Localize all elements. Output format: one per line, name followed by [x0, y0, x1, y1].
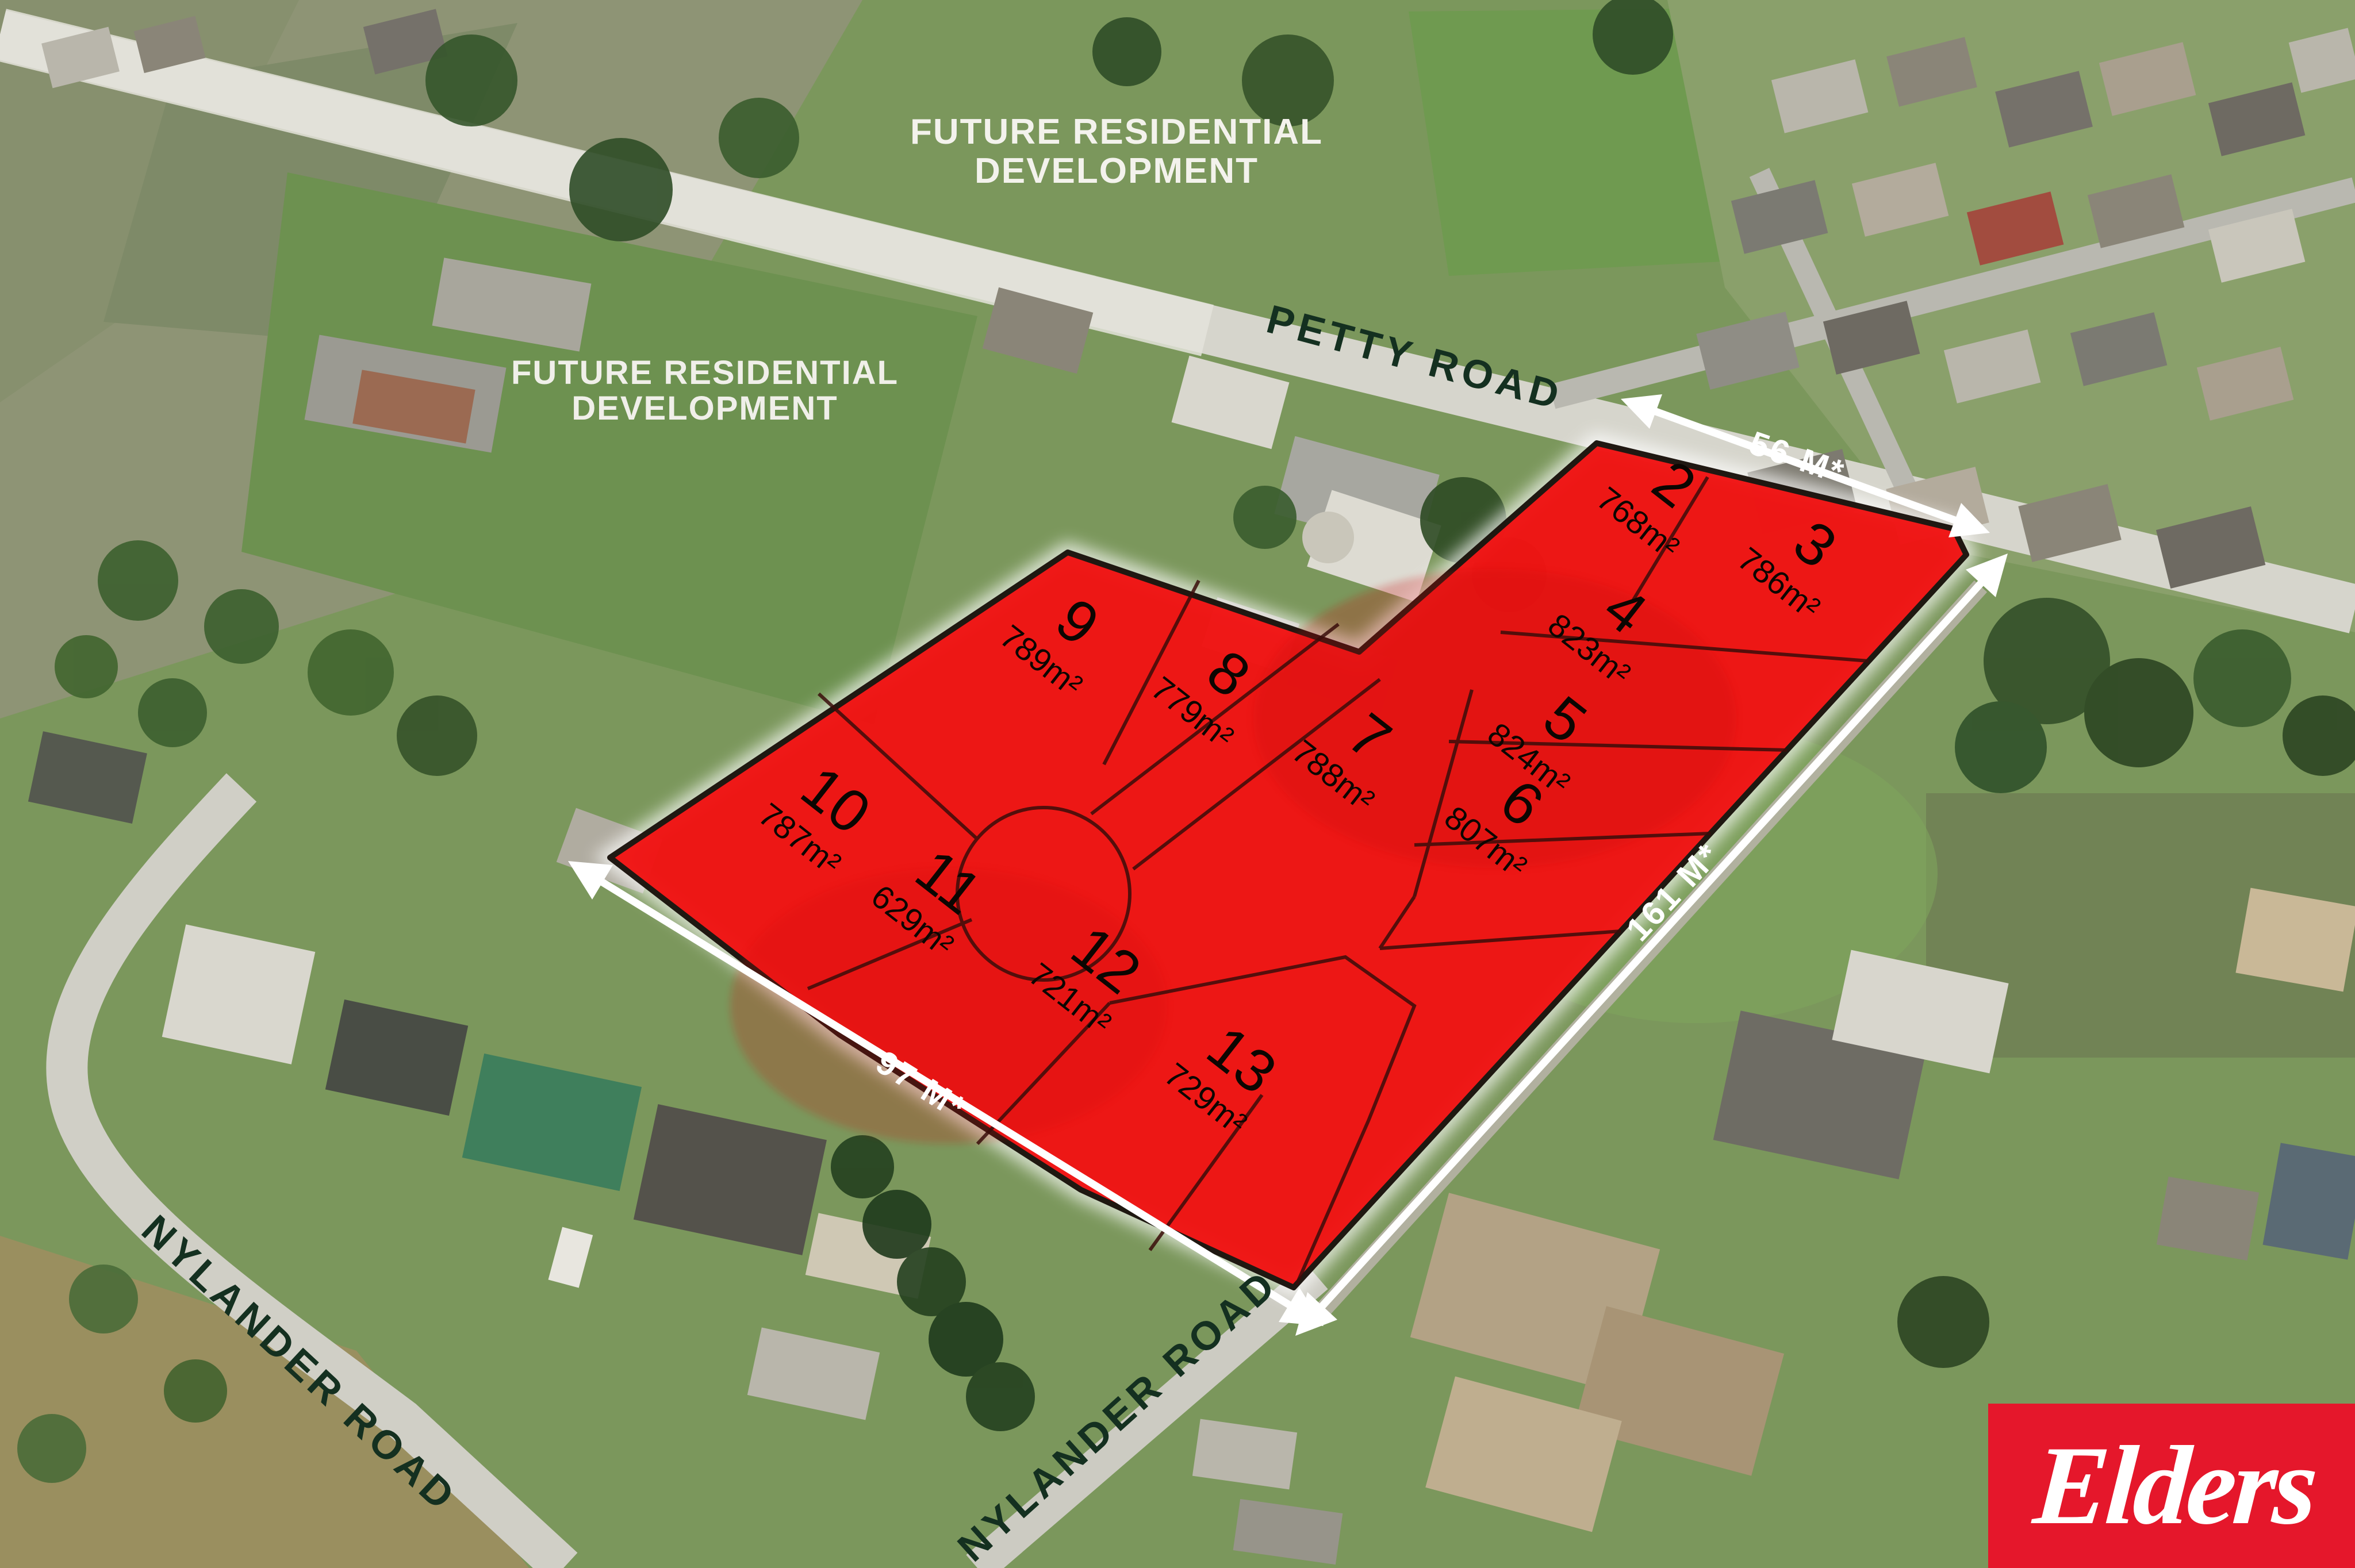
conifer-tree	[966, 1362, 1035, 1431]
future-development-label-west: FUTURE RESIDENTIAL	[511, 354, 899, 391]
tree	[98, 540, 178, 621]
tree	[138, 678, 207, 747]
future-development-label-north-line2: DEVELOPMENT	[975, 151, 1259, 191]
conifer-tree	[831, 1135, 894, 1198]
tree	[569, 138, 673, 241]
elders-wordmark: Elders	[2029, 1423, 2319, 1548]
tree	[425, 34, 517, 126]
aerial-site-plan: 2 768m² 3 786m² 4 823m² 5 824m² 6 807m² …	[0, 0, 2355, 1568]
tree	[2193, 629, 2291, 727]
tree	[55, 635, 118, 698]
tree	[2084, 658, 2193, 767]
tree	[397, 695, 477, 776]
tree	[164, 1359, 227, 1423]
tree	[308, 629, 394, 716]
tree	[204, 589, 279, 664]
tree	[1955, 701, 2047, 793]
tree	[719, 98, 799, 178]
tree	[1897, 1276, 1989, 1368]
future-development-label-west-line2: DEVELOPMENT	[572, 390, 838, 427]
elders-logo: Elders	[1988, 1404, 2355, 1568]
conifer-tree	[862, 1190, 931, 1259]
tree	[1233, 486, 1297, 549]
tree	[1092, 17, 1161, 86]
tree	[17, 1414, 86, 1483]
tree	[69, 1265, 138, 1333]
future-development-label-north: FUTURE RESIDENTIAL	[910, 112, 1323, 152]
turret-roof	[1302, 512, 1354, 563]
